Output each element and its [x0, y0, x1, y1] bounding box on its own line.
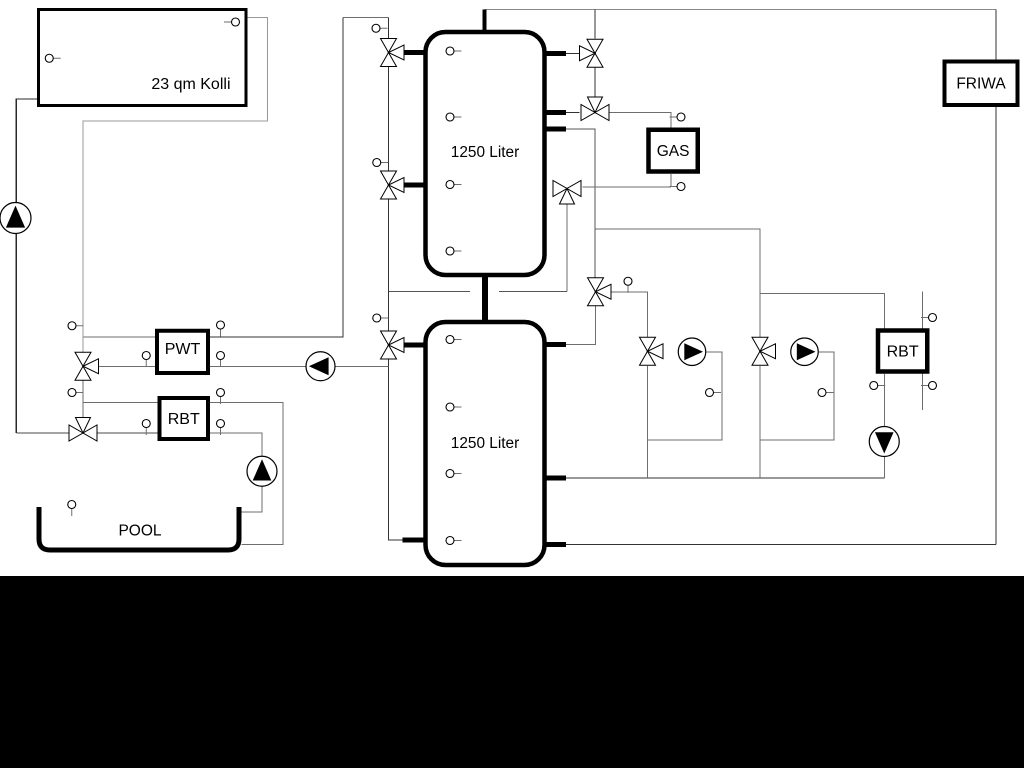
svg-text:1250 Liter: 1250 Liter: [451, 144, 519, 161]
svg-text:RBT: RBT: [168, 411, 200, 428]
svg-text:1250 Liter: 1250 Liter: [451, 435, 519, 452]
svg-text:POOL: POOL: [118, 523, 161, 540]
svg-text:23 qm Kolli: 23 qm Kolli: [151, 76, 230, 93]
svg-text:RBT: RBT: [887, 344, 919, 361]
svg-text:GAS: GAS: [657, 143, 690, 160]
svg-text:PWT: PWT: [165, 341, 201, 358]
svg-text:FRIWA: FRIWA: [956, 76, 1006, 93]
